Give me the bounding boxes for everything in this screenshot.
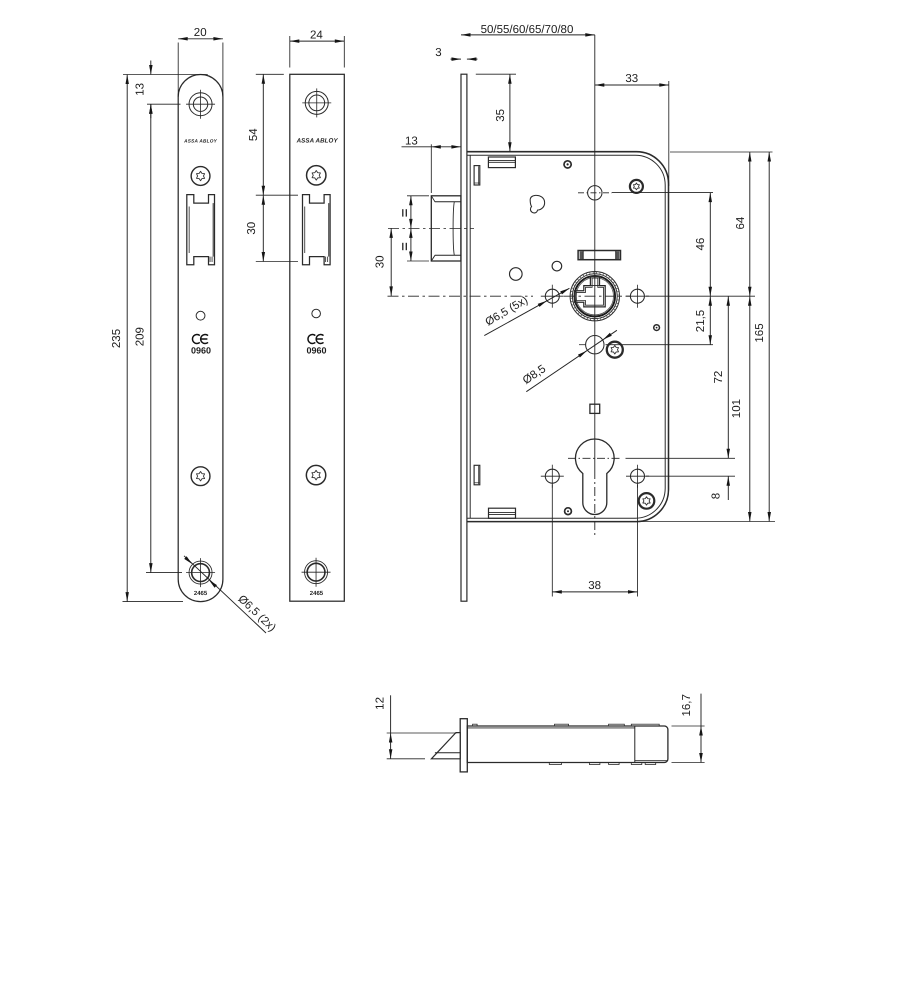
svg-text:101: 101 — [731, 399, 743, 418]
svg-text:72: 72 — [713, 371, 725, 384]
svg-text:0960: 0960 — [191, 345, 211, 355]
svg-text:33: 33 — [625, 73, 638, 85]
svg-text:64: 64 — [735, 216, 747, 229]
svg-text:ASSA ABLOY: ASSA ABLOY — [296, 138, 339, 145]
svg-text:ASSA ABLOY: ASSA ABLOY — [183, 138, 218, 143]
svg-text:21,5: 21,5 — [695, 310, 707, 332]
svg-text:54: 54 — [248, 128, 260, 141]
svg-text:209: 209 — [134, 327, 146, 346]
svg-text:46: 46 — [695, 238, 707, 251]
svg-text:30: 30 — [246, 222, 258, 235]
svg-text:12: 12 — [375, 697, 387, 710]
svg-text:35: 35 — [495, 109, 507, 122]
svg-text:20: 20 — [194, 27, 207, 39]
svg-text:165: 165 — [754, 323, 766, 342]
svg-text:16,7: 16,7 — [681, 694, 693, 716]
svg-text:13: 13 — [405, 135, 418, 147]
svg-text:50/55/60/65/70/80: 50/55/60/65/70/80 — [481, 24, 574, 36]
svg-text:3: 3 — [435, 47, 441, 59]
svg-text:2465: 2465 — [310, 590, 324, 597]
svg-text:0960: 0960 — [307, 345, 327, 355]
svg-text:8: 8 — [711, 493, 723, 499]
svg-text:38: 38 — [588, 580, 601, 592]
svg-text:30: 30 — [375, 256, 387, 269]
svg-text:235: 235 — [111, 329, 123, 348]
svg-text:24: 24 — [310, 29, 323, 41]
svg-text:13: 13 — [134, 83, 146, 96]
svg-text:2465: 2465 — [194, 590, 208, 597]
